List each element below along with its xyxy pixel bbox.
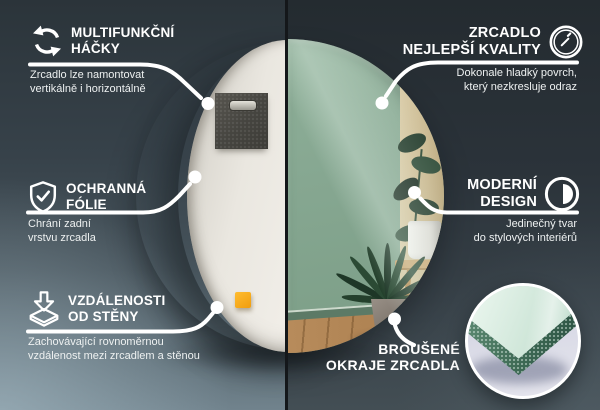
callout-title: ZRCADLO (403, 25, 541, 42)
rotate-arrows-icon (30, 24, 64, 58)
orange-spacer-pad (235, 292, 251, 308)
callout-film-desc: Chrání zadní vrstvu zrcadla (28, 218, 96, 245)
callout-design-desc: Jedinečný tvar do stylových interiérů (474, 218, 577, 245)
callout-quality-desc: Dokonale hladký povrch, který nezkresluj… (457, 67, 577, 94)
callout-hooks: MULTIFUNKČNÍ HÁČKY (30, 24, 174, 58)
shield-check-icon (27, 180, 59, 214)
glass-sheen (288, 39, 444, 353)
callout-edges: BROUŠENÉ OKRAJE ZRCADLA (326, 341, 460, 373)
callout-title: MULTIFUNKČNÍ (71, 25, 174, 42)
mirror-front-reflection (288, 39, 444, 353)
callout-title: HÁČKY (71, 41, 174, 58)
callout-title: DESIGN (467, 194, 537, 211)
felt-hanging-pad (215, 93, 268, 149)
callout-distance-desc: Zachovávající rovnoměrnou vzdálenost mez… (28, 336, 200, 363)
distance-arrow-icon (27, 290, 61, 328)
callout-quality: ZRCADLO NEJLEPŠÍ KVALITY (403, 24, 584, 60)
callout-distance: VZDÁLENOSTI OD STĚNY (27, 290, 165, 328)
callout-film: OCHRANNÁ FÓLIE (27, 180, 146, 214)
edge-detail-photo (465, 283, 581, 399)
callout-design: MODERNÍ DESIGN (467, 176, 580, 212)
metal-hook-slot (229, 100, 257, 111)
callout-title: OD STĚNY (68, 309, 165, 326)
callout-title: VZDÁLENOSTI (68, 293, 165, 310)
callout-hooks-desc: Zrcadlo lze namontovat vertikálně i hori… (30, 69, 146, 96)
mirror-shine-icon (548, 24, 584, 60)
callout-title: MODERNÍ (467, 177, 537, 194)
callout-title: FÓLIE (66, 197, 146, 214)
callout-title: OCHRANNÁ (66, 181, 146, 198)
contrast-circle-icon (544, 176, 580, 212)
callout-title: NEJLEPŠÍ KVALITY (403, 42, 541, 59)
mirror-infographic: MULTIFUNKČNÍ HÁČKY Zrcadlo lze namontova… (0, 0, 600, 410)
center-divider-line (285, 0, 288, 410)
